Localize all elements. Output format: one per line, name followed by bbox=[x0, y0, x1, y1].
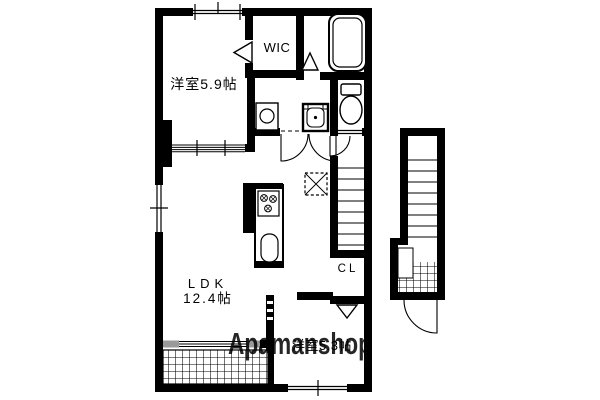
ldk-label: LDK bbox=[188, 276, 228, 291]
sink-icon bbox=[261, 234, 278, 262]
washbasin-icon bbox=[303, 104, 328, 131]
ldk-size-label: 12.4帖 bbox=[183, 291, 233, 306]
floor-plan-page: 洋室5.9帖 WIC LDK 12.4帖 CL 洋室5.3帖 Apamansho… bbox=[0, 0, 600, 400]
stove-icon bbox=[258, 191, 279, 216]
stair-landing bbox=[398, 248, 413, 278]
bathtub-icon bbox=[329, 14, 366, 71]
wic-label: WIC bbox=[264, 40, 291, 55]
toilet-icon bbox=[340, 84, 362, 124]
apamanshop-watermark: Apamanshop bbox=[228, 326, 372, 361]
bedroom1-label: 洋室5.9帖 bbox=[170, 76, 237, 92]
floor-plan: 洋室5.9帖 WIC LDK 12.4帖 CL 洋室5.3帖 Apamansho… bbox=[0, 0, 600, 400]
refrigerator-icon bbox=[305, 173, 327, 195]
washing-machine-icon bbox=[256, 103, 278, 130]
closet-label: CL bbox=[338, 263, 359, 275]
window-frame-gray bbox=[163, 341, 179, 348]
wall-dash-marks bbox=[267, 301, 273, 320]
